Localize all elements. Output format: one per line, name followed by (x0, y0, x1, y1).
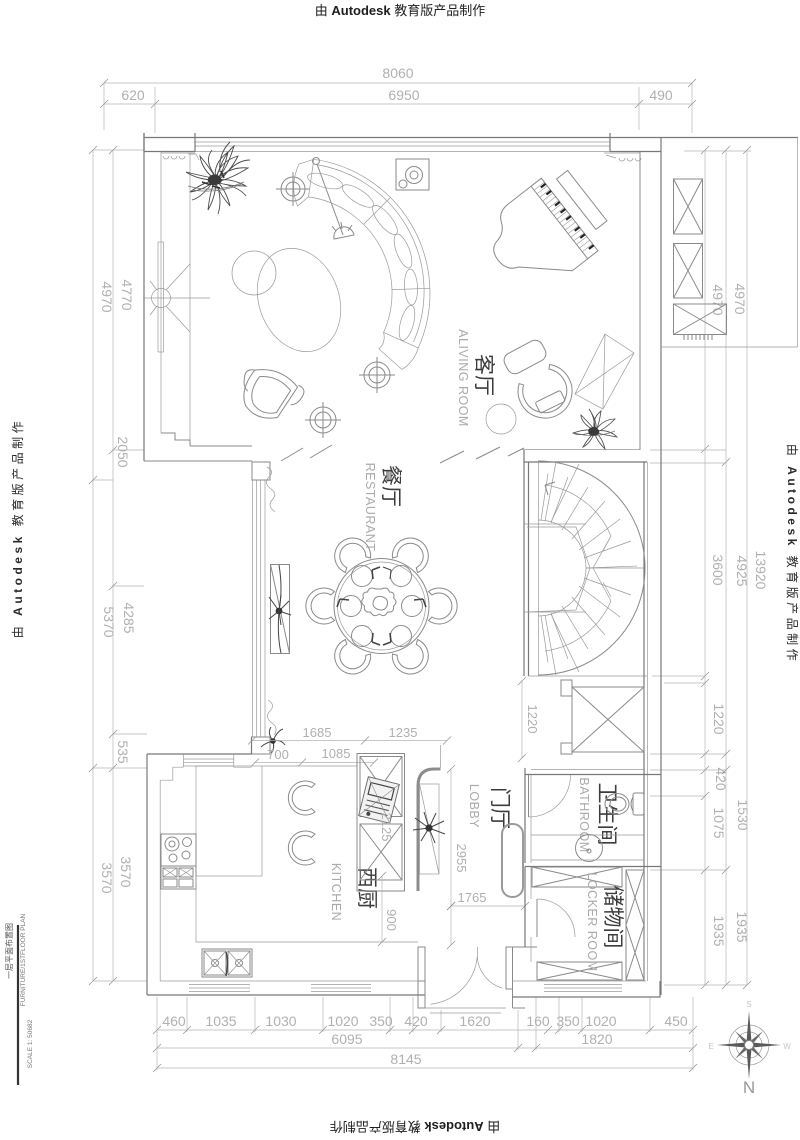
svg-text:1020: 1020 (585, 1013, 616, 1029)
svg-text:4770: 4770 (119, 279, 135, 310)
svg-text:1530: 1530 (735, 799, 751, 830)
svg-text:420: 420 (404, 1013, 428, 1029)
svg-text:460: 460 (162, 1013, 186, 1029)
svg-text:LOCKER ROOM: LOCKER ROOM (585, 872, 599, 971)
svg-text:SCALE 1: 50682: SCALE 1: 50682 (27, 1019, 34, 1068)
svg-text:BATHROOM: BATHROOM (577, 777, 591, 852)
svg-text:4925: 4925 (734, 555, 750, 586)
svg-text:1685: 1685 (303, 725, 332, 740)
svg-text:门厅: 门厅 (488, 787, 511, 829)
svg-text:储物间: 储物间 (601, 886, 624, 949)
svg-text:由 Autodesk 教育版产品制作: 由 Autodesk 教育版产品制作 (330, 1119, 500, 1134)
svg-text:4970: 4970 (99, 281, 115, 312)
svg-text:西厨: 西厨 (355, 867, 378, 909)
svg-text:1235: 1235 (389, 725, 418, 740)
svg-text:W: W (783, 1042, 791, 1051)
svg-text:1620: 1620 (459, 1013, 490, 1029)
svg-text:1220: 1220 (711, 703, 727, 734)
svg-text:3570: 3570 (118, 856, 134, 887)
svg-text:1935: 1935 (711, 915, 727, 946)
svg-text:535: 535 (115, 740, 131, 764)
svg-text:3570: 3570 (99, 862, 115, 893)
svg-text:一层平面布置图: 一层平面布置图 (4, 923, 14, 979)
svg-text:350: 350 (556, 1013, 580, 1029)
svg-text:1220: 1220 (525, 705, 540, 734)
svg-text:1030: 1030 (265, 1013, 296, 1029)
svg-text:ALIVING ROOM: ALIVING ROOM (456, 329, 470, 427)
svg-text:由 Autodesk 教育版产品制作: 由 Autodesk 教育版产品制作 (785, 444, 800, 664)
svg-text:2050: 2050 (115, 436, 131, 467)
svg-text:900: 900 (384, 909, 399, 931)
svg-text:1765: 1765 (458, 890, 487, 905)
svg-text:4970: 4970 (710, 284, 726, 315)
svg-text:5370: 5370 (101, 606, 117, 637)
svg-text:KITCHEN: KITCHEN (329, 863, 343, 921)
svg-text:2125: 2125 (379, 813, 394, 842)
svg-text:1820: 1820 (581, 1031, 612, 1047)
svg-text:700: 700 (267, 747, 289, 762)
svg-text:620: 620 (121, 87, 145, 103)
svg-text:490: 490 (649, 87, 673, 103)
svg-text:N: N (743, 1078, 755, 1097)
svg-text:RESTAURANT: RESTAURANT (363, 463, 377, 552)
svg-text:4285: 4285 (121, 602, 137, 633)
svg-text:420: 420 (713, 767, 729, 791)
svg-text:S: S (746, 1000, 751, 1009)
svg-text:4970: 4970 (732, 283, 748, 314)
svg-text:客厅: 客厅 (472, 354, 495, 396)
svg-text:3600: 3600 (710, 554, 726, 585)
svg-text:E: E (708, 1042, 713, 1051)
svg-text:6095: 6095 (331, 1031, 362, 1047)
svg-text:1020: 1020 (327, 1013, 358, 1029)
svg-text:6950: 6950 (388, 87, 419, 103)
svg-text:8060: 8060 (382, 65, 413, 81)
svg-text:1085: 1085 (322, 746, 351, 761)
svg-text:13920: 13920 (753, 551, 769, 590)
svg-text:2955: 2955 (454, 844, 469, 873)
svg-text:1075: 1075 (711, 807, 727, 838)
svg-text:450: 450 (664, 1013, 688, 1029)
svg-text:FURNITURE/1STFLOOR PLAN: FURNITURE/1STFLOOR PLAN (20, 913, 27, 1006)
svg-text:餐厅: 餐厅 (379, 465, 402, 507)
svg-text:LOBBY: LOBBY (467, 784, 481, 828)
svg-text:由 Autodesk 教育版产品制作: 由 Autodesk 教育版产品制作 (10, 418, 25, 638)
svg-text:1935: 1935 (734, 911, 750, 942)
svg-text:1035: 1035 (205, 1013, 236, 1029)
svg-text:由 Autodesk 教育版产品制作: 由 Autodesk 教育版产品制作 (315, 3, 485, 18)
svg-text:8145: 8145 (390, 1051, 421, 1067)
svg-text:350: 350 (369, 1013, 393, 1029)
svg-text:160: 160 (526, 1013, 550, 1029)
